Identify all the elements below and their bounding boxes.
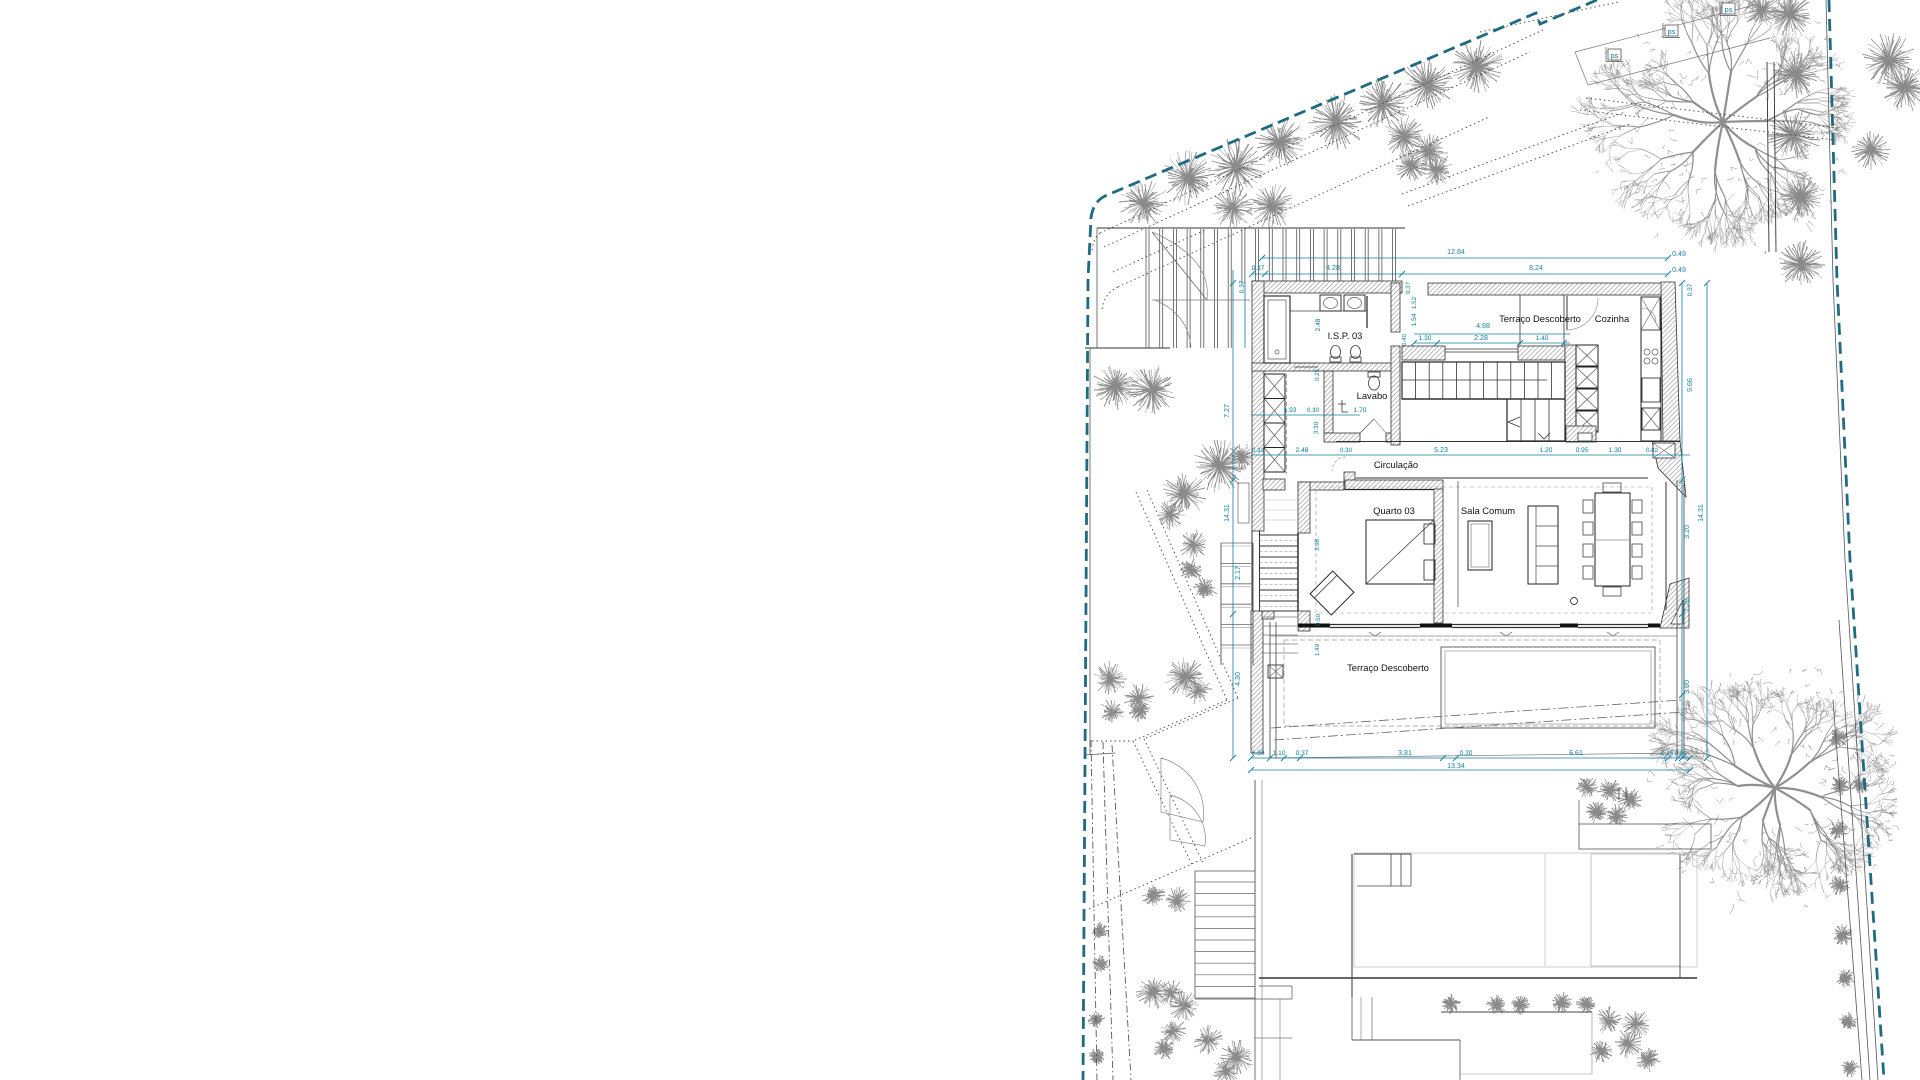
svg-text:I.S.P. 03: I.S.P. 03: [1328, 330, 1363, 341]
svg-text:2.17: 2.17: [1234, 566, 1242, 580]
svg-text:1.30: 1.30: [1609, 447, 1622, 454]
svg-text:2.48: 2.48: [1315, 318, 1322, 331]
svg-text:1.52: 1.52: [1411, 296, 1418, 309]
svg-text:3.98: 3.98: [1314, 538, 1321, 551]
svg-text:Sala Comum: Sala Comum: [1461, 505, 1515, 516]
svg-text:ps: ps: [1668, 27, 1676, 36]
svg-text:6.30: 6.30: [1252, 750, 1265, 757]
svg-text:1.28: 1.28: [1683, 598, 1691, 612]
svg-text:0.50: 0.50: [1315, 613, 1322, 626]
svg-text:2.48: 2.48: [1296, 447, 1309, 454]
svg-text:Circulação: Circulação: [1374, 459, 1418, 470]
svg-text:13.34: 13.34: [1447, 762, 1465, 770]
svg-text:3.30: 3.30: [1313, 421, 1320, 434]
svg-text:5.66: 5.66: [1686, 378, 1694, 392]
svg-text:4.28: 4.28: [1326, 264, 1340, 272]
svg-text:0.82: 0.82: [1646, 447, 1659, 454]
svg-text:Cozinha: Cozinha: [1595, 313, 1630, 324]
svg-text:12.84: 12.84: [1447, 248, 1465, 256]
svg-text:3.20: 3.20: [1683, 525, 1691, 539]
svg-text:7.27: 7.27: [1223, 404, 1231, 418]
svg-text:14.31: 14.31: [1223, 504, 1231, 522]
svg-text:0.49: 0.49: [1672, 266, 1686, 274]
svg-text:Lavabo: Lavabo: [1357, 390, 1388, 401]
svg-text:0.37: 0.37: [1296, 750, 1309, 757]
svg-text:Terraço Descoberto: Terraço Descoberto: [1347, 662, 1429, 673]
svg-text:5.23: 5.23: [1434, 446, 1448, 454]
svg-text:0.37: 0.37: [1405, 281, 1412, 294]
svg-text:1.20: 1.20: [1540, 447, 1553, 454]
svg-text:0.30: 0.30: [1307, 407, 1320, 414]
svg-text:0.40: 0.40: [1401, 334, 1408, 346]
svg-text:1.54: 1.54: [1411, 313, 1418, 326]
svg-text:2.28: 2.28: [1474, 334, 1488, 342]
svg-text:0.95: 0.95: [1576, 447, 1589, 454]
svg-text:0.37: 0.37: [1252, 265, 1265, 272]
svg-text:ps: ps: [1725, 5, 1733, 14]
svg-text:8.24: 8.24: [1529, 264, 1543, 272]
svg-text:6.61: 6.61: [1569, 749, 1583, 757]
svg-text:1.40: 1.40: [1314, 643, 1321, 656]
svg-text:4.98: 4.98: [1476, 322, 1490, 330]
svg-text:4.30: 4.30: [1234, 672, 1242, 686]
svg-text:0.30: 0.30: [1460, 750, 1473, 757]
svg-text:1.70: 1.70: [1354, 407, 1367, 414]
svg-text:ps: ps: [1611, 51, 1619, 60]
svg-text:3.81: 3.81: [1398, 749, 1412, 757]
svg-text:1.93: 1.93: [1284, 407, 1297, 414]
svg-text:0.37: 0.37: [1687, 283, 1694, 296]
svg-text:0.49: 0.49: [1672, 250, 1686, 258]
svg-text:0.25: 0.25: [1314, 368, 1321, 381]
svg-text:3.80: 3.80: [1683, 680, 1691, 694]
svg-text:Terraço Descoberto: Terraço Descoberto: [1499, 313, 1581, 324]
svg-text:1.30: 1.30: [1419, 335, 1432, 342]
svg-text:1.40: 1.40: [1536, 335, 1549, 342]
svg-text:1.10: 1.10: [1273, 750, 1286, 757]
svg-text:14.31: 14.31: [1697, 504, 1705, 522]
svg-text:0.33: 0.33: [1252, 447, 1265, 454]
svg-text:Quarto 03: Quarto 03: [1373, 505, 1415, 516]
svg-text:0.30: 0.30: [1340, 447, 1353, 454]
